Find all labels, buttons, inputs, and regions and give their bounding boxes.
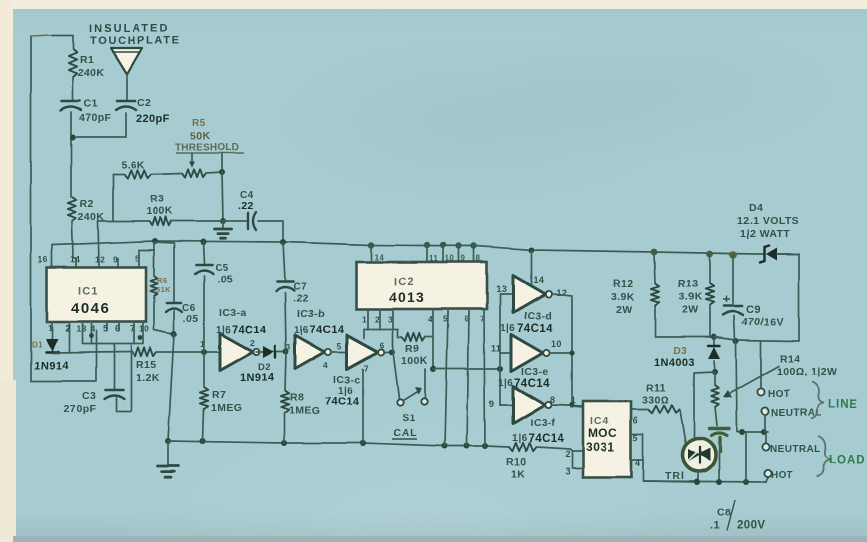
- svg-text:14: 14: [374, 252, 384, 262]
- svg-text:.05: .05: [183, 313, 199, 325]
- svg-text:5: 5: [337, 341, 342, 351]
- svg-text:270pF: 270pF: [64, 403, 97, 415]
- svg-text:12: 12: [95, 254, 105, 264]
- svg-text:TOUCHPLATE: TOUCHPLATE: [90, 35, 181, 47]
- svg-text:R15: R15: [136, 359, 156, 371]
- svg-text:R9: R9: [405, 343, 419, 355]
- svg-text:4046: 4046: [71, 300, 110, 317]
- svg-text:1MEG: 1MEG: [289, 405, 320, 417]
- svg-text:D1: D1: [32, 340, 43, 349]
- svg-text:R3: R3: [150, 193, 164, 205]
- svg-text:14: 14: [533, 275, 544, 285]
- svg-text:R6: R6: [157, 276, 167, 285]
- svg-text:R5: R5: [192, 118, 206, 129]
- svg-text:10: 10: [551, 339, 562, 349]
- svg-text:6: 6: [115, 324, 120, 334]
- svg-text:IC3-d: IC3-d: [524, 310, 552, 322]
- svg-text:13: 13: [76, 324, 86, 334]
- svg-text:.1: .1: [710, 520, 720, 532]
- svg-text:MOC: MOC: [588, 426, 618, 440]
- svg-text:74C14: 74C14: [310, 324, 345, 336]
- svg-text:6: 6: [633, 415, 638, 425]
- svg-text:12.1 VOLTS: 12.1 VOLTS: [737, 215, 799, 227]
- svg-text:1MEG: 1MEG: [211, 402, 242, 414]
- svg-text:3.9K: 3.9K: [611, 291, 635, 303]
- svg-text:R14: R14: [780, 353, 800, 365]
- svg-text:9: 9: [113, 254, 118, 264]
- svg-text:4013: 4013: [389, 289, 425, 305]
- svg-text:5: 5: [103, 324, 108, 334]
- svg-text:3: 3: [286, 342, 291, 352]
- svg-text:IC3-b: IC3-b: [297, 308, 325, 320]
- svg-text:HOT: HOT: [768, 389, 790, 400]
- svg-text:IC2: IC2: [394, 276, 415, 288]
- svg-text:3.9K: 3.9K: [679, 291, 703, 303]
- svg-text:5.6K: 5.6K: [121, 159, 145, 171]
- svg-text:1|6: 1|6: [512, 433, 527, 444]
- svg-text:100K: 100K: [146, 205, 173, 217]
- svg-text:7: 7: [364, 363, 369, 373]
- svg-text:C7: C7: [293, 282, 307, 293]
- svg-text:2: 2: [565, 449, 570, 459]
- svg-text:R8: R8: [290, 392, 304, 404]
- svg-text:1: 1: [200, 339, 205, 349]
- svg-text:1|2 WATT: 1|2 WATT: [740, 228, 790, 240]
- svg-text:12: 12: [556, 288, 567, 298]
- svg-text:100Ω, 1|2W: 100Ω, 1|2W: [777, 366, 837, 378]
- svg-text:LINE: LINE: [828, 399, 858, 411]
- svg-text:2: 2: [250, 338, 255, 348]
- svg-text:.22: .22: [238, 200, 254, 212]
- svg-text:CAL: CAL: [393, 427, 418, 439]
- svg-text:THRESHOLD: THRESHOLD: [175, 142, 239, 153]
- svg-text:470pF: 470pF: [79, 112, 112, 124]
- svg-text:1N914: 1N914: [34, 360, 69, 372]
- svg-text:10: 10: [139, 324, 149, 334]
- svg-text:330Ω: 330Ω: [642, 394, 670, 406]
- svg-text:2W: 2W: [682, 304, 699, 316]
- svg-text:R7: R7: [212, 389, 226, 401]
- svg-text:R12: R12: [613, 278, 633, 290]
- svg-text:200V: 200V: [737, 520, 765, 532]
- svg-text:IC3-e: IC3-e: [521, 366, 549, 378]
- svg-text:1|6: 1|6: [498, 378, 513, 389]
- svg-text:74C14: 74C14: [325, 396, 360, 408]
- svg-text:220pF: 220pF: [136, 113, 170, 125]
- svg-text:13: 13: [496, 284, 507, 294]
- svg-text:.05: .05: [217, 274, 233, 286]
- svg-text:LOAD: LOAD: [829, 454, 866, 466]
- svg-text:R10: R10: [506, 456, 526, 468]
- svg-text:D4: D4: [749, 202, 763, 214]
- svg-text:1N914: 1N914: [240, 372, 275, 384]
- svg-text:R2: R2: [80, 198, 94, 210]
- svg-text:C1: C1: [84, 98, 98, 110]
- svg-text:74C14: 74C14: [528, 433, 564, 445]
- svg-text:74C14: 74C14: [517, 323, 553, 335]
- svg-text:C9: C9: [746, 304, 761, 316]
- svg-text:1K: 1K: [511, 468, 525, 480]
- svg-text:IC3-a: IC3-a: [219, 307, 247, 319]
- svg-text:TRI: TRI: [665, 470, 685, 482]
- svg-text:IC3-f: IC3-f: [530, 417, 555, 429]
- svg-text:51K: 51K: [156, 285, 171, 294]
- svg-text:74C14: 74C14: [232, 324, 267, 336]
- svg-text:470/16V: 470/16V: [742, 316, 784, 328]
- svg-text:1: 1: [362, 314, 367, 324]
- svg-text:IC1: IC1: [78, 285, 99, 297]
- svg-text:C5: C5: [215, 263, 229, 274]
- svg-text:74C14: 74C14: [514, 378, 550, 390]
- svg-text:3031: 3031: [586, 440, 615, 454]
- svg-text:2W: 2W: [616, 304, 633, 316]
- svg-text:S1: S1: [402, 413, 415, 424]
- svg-text:IC3-c: IC3-c: [333, 374, 361, 386]
- svg-text:C8: C8: [717, 507, 731, 519]
- svg-text:HOT: HOT: [771, 470, 793, 481]
- svg-text:1: 1: [571, 395, 576, 405]
- svg-text:INSULATED: INSULATED: [89, 23, 170, 35]
- svg-text:9: 9: [489, 399, 494, 409]
- svg-text:NEUTRAL: NEUTRAL: [770, 444, 821, 455]
- svg-text:16: 16: [38, 254, 48, 264]
- svg-text:R13: R13: [678, 278, 698, 290]
- svg-text:D3: D3: [673, 346, 687, 357]
- svg-text:R1: R1: [80, 54, 94, 66]
- svg-text:50K: 50K: [190, 130, 210, 142]
- svg-text:1.2K: 1.2K: [136, 372, 160, 384]
- svg-text:1|6: 1|6: [500, 323, 515, 334]
- svg-text:3: 3: [565, 466, 570, 476]
- svg-text:C2: C2: [137, 97, 151, 109]
- svg-text:11: 11: [491, 344, 501, 354]
- svg-text:100K: 100K: [401, 355, 428, 367]
- svg-text:4: 4: [323, 360, 328, 370]
- svg-text:240K: 240K: [78, 67, 105, 79]
- svg-text:C3: C3: [82, 390, 96, 402]
- svg-text:1N4003: 1N4003: [654, 357, 695, 369]
- svg-text:.22: .22: [293, 293, 309, 305]
- svg-text:14: 14: [70, 254, 80, 264]
- svg-text:R11: R11: [646, 382, 666, 394]
